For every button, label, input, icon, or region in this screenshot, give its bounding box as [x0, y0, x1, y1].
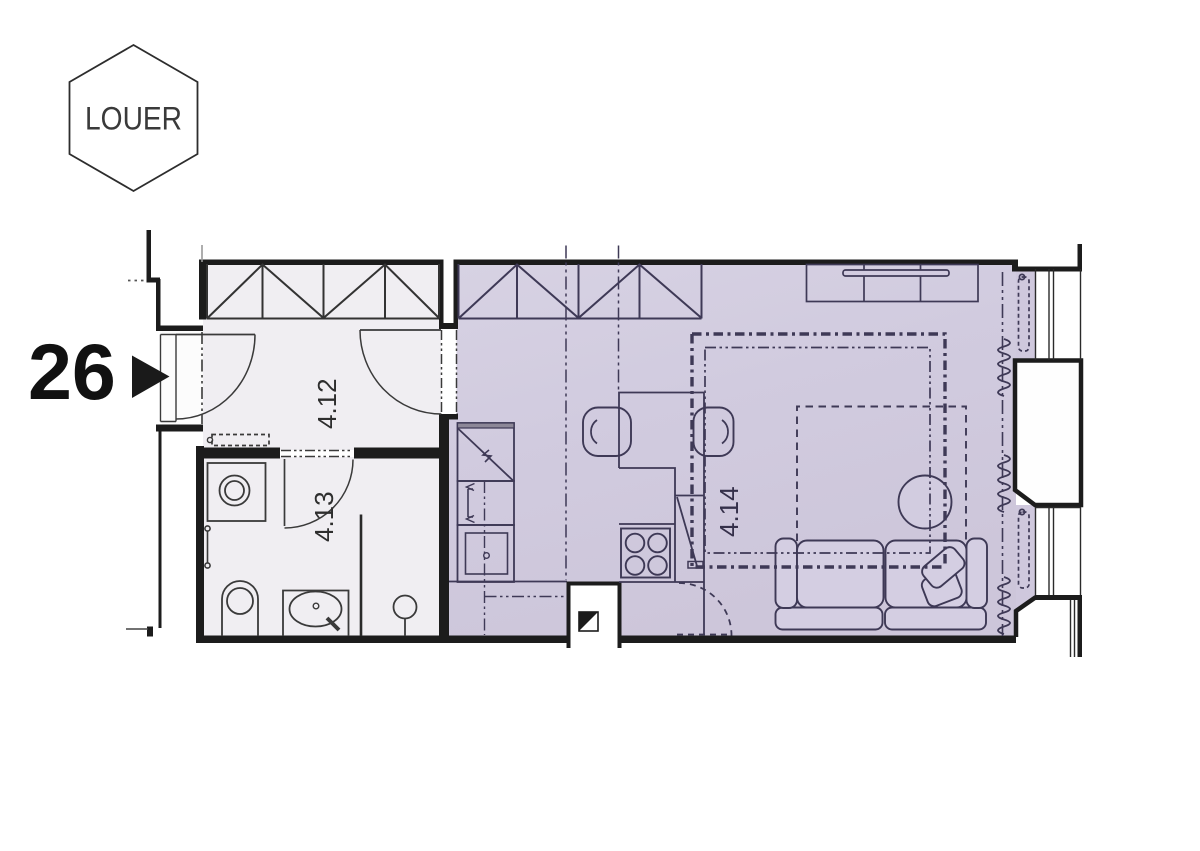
- svg-text:LOUER: LOUER: [85, 102, 182, 137]
- svg-text:4.14: 4.14: [714, 486, 744, 537]
- svg-text:4.12: 4.12: [312, 378, 342, 429]
- svg-text:26: 26: [28, 327, 116, 416]
- svg-text:4.13: 4.13: [309, 491, 339, 542]
